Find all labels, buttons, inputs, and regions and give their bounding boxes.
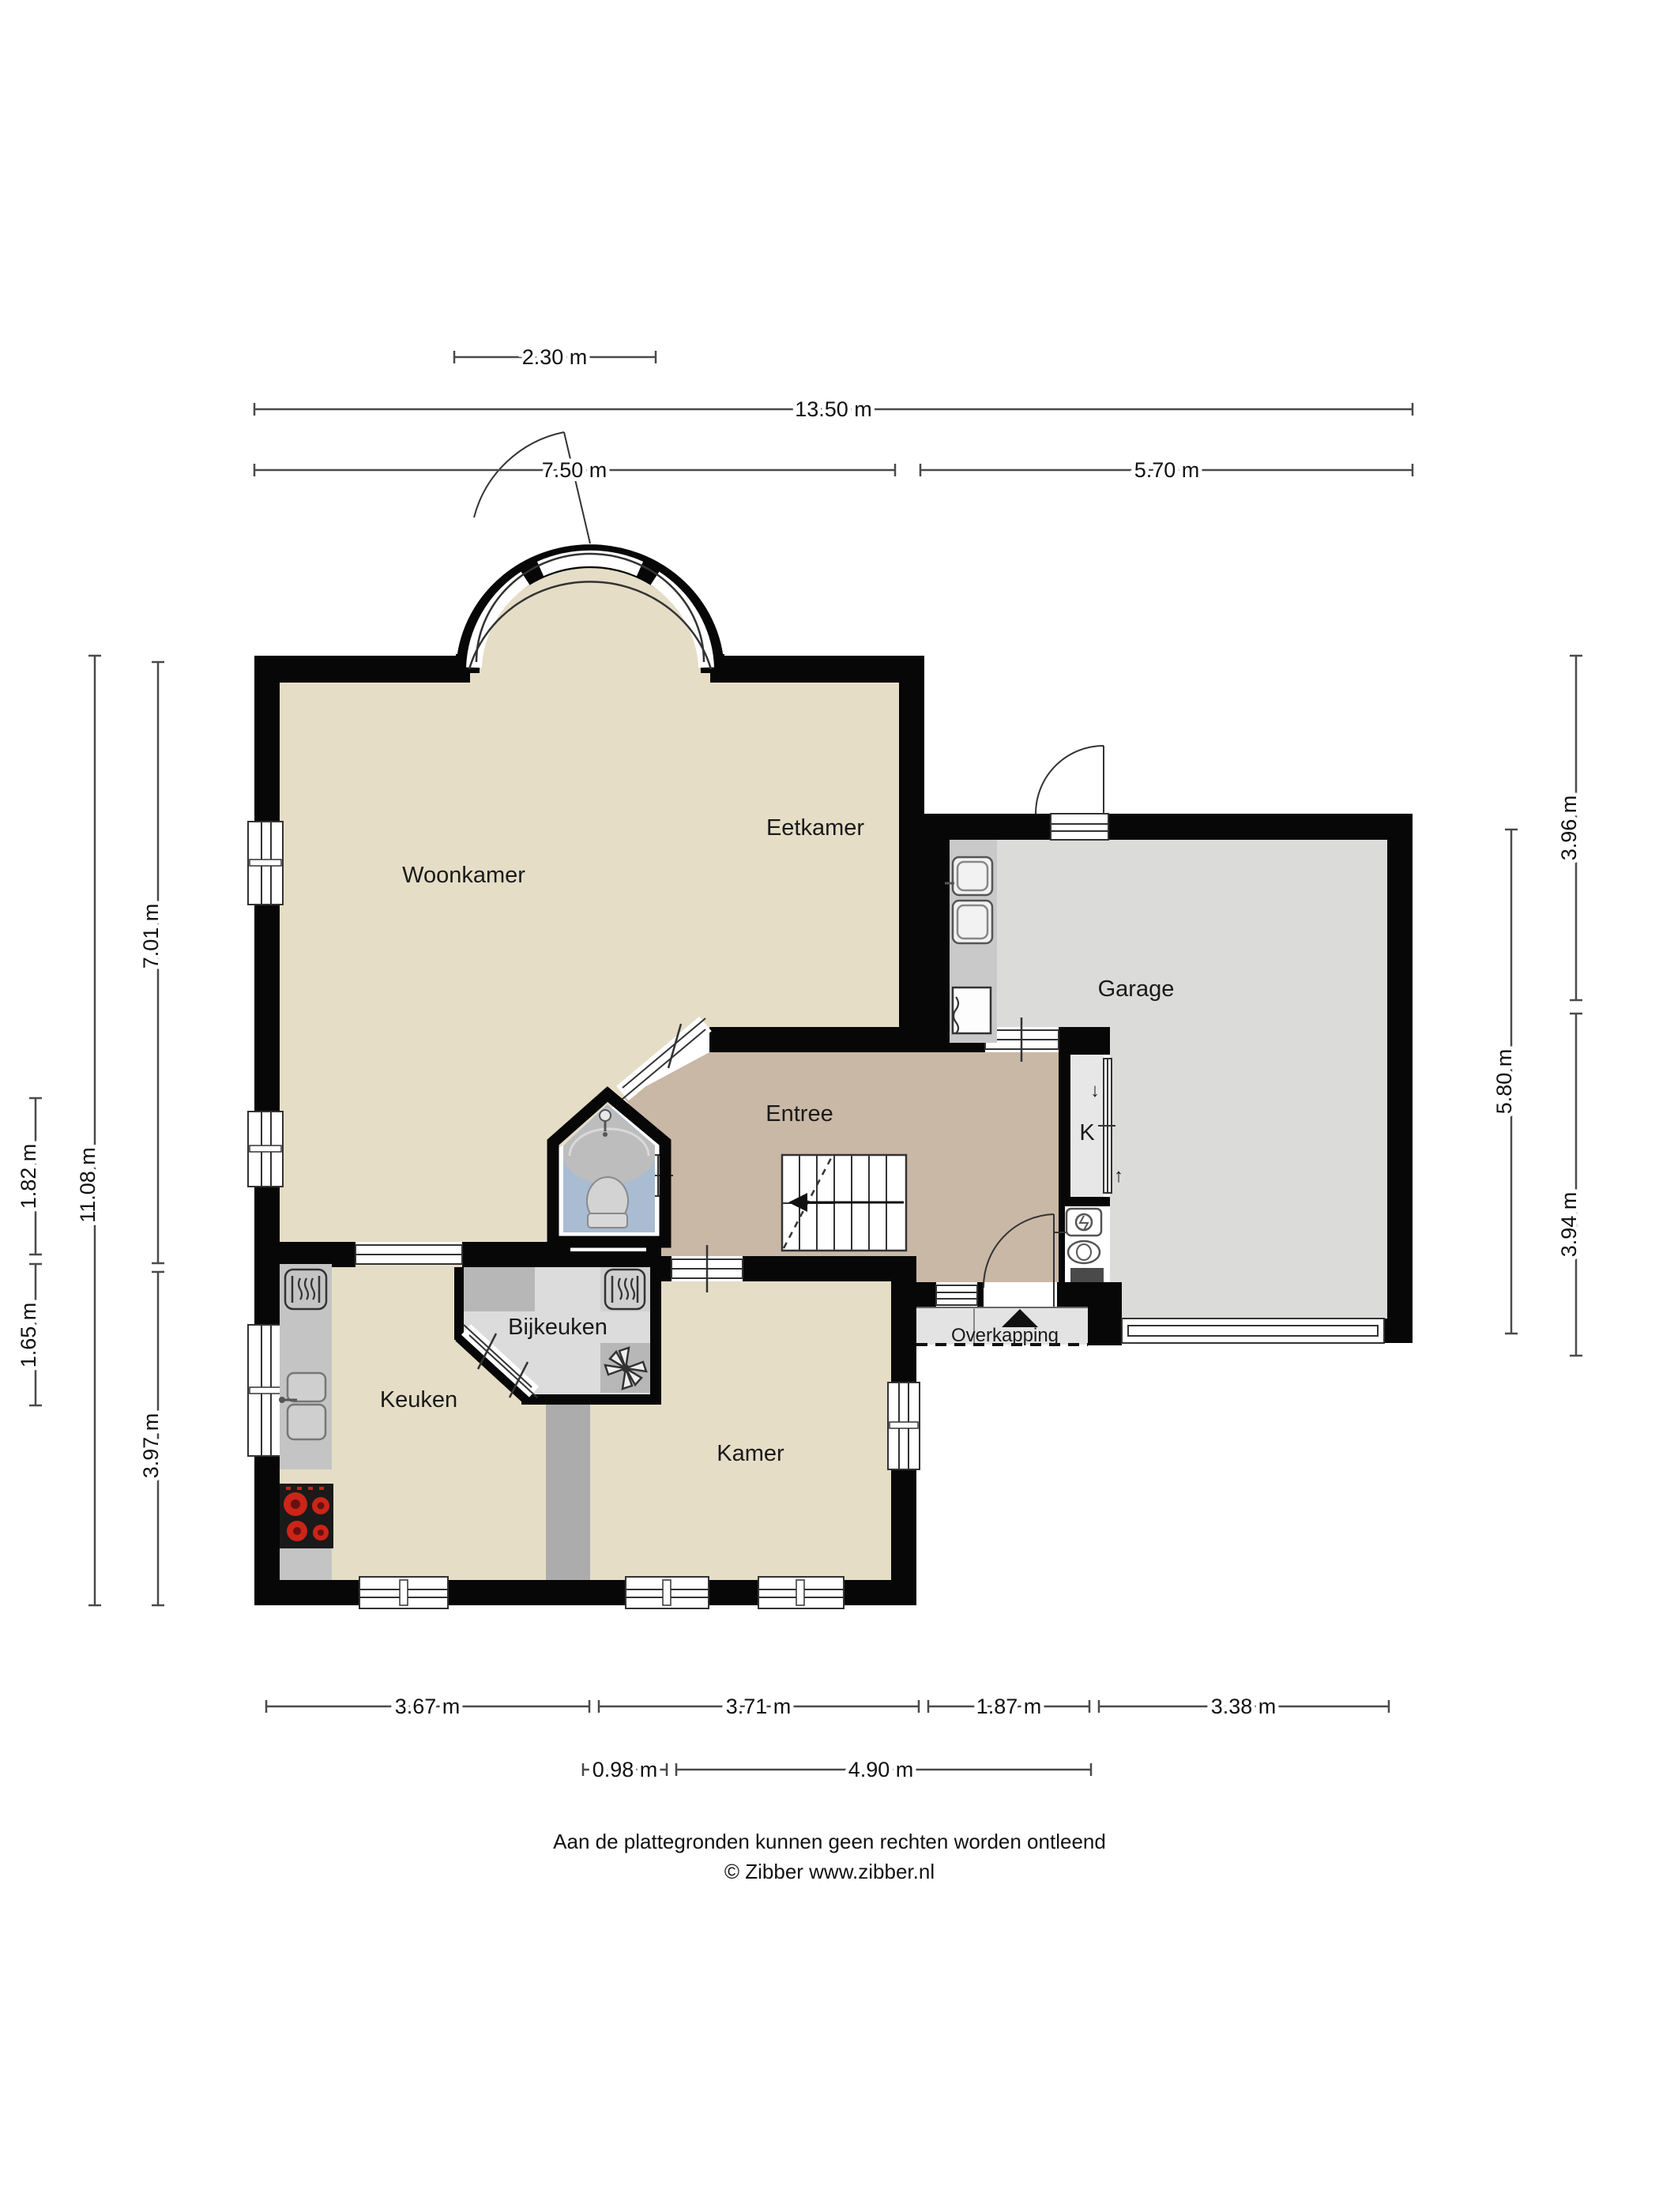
dim-bottom-371: 3.71 m [599, 1695, 919, 1718]
floorplan-page: Woonkamer Eetkamer Entree Garage Keuken … [0, 0, 1659, 2212]
window-interior-keuken [355, 1245, 462, 1264]
window-kamer-right [888, 1382, 920, 1469]
wall-garage-right [1387, 814, 1413, 1343]
dim-bottom-367: 3.67 m [266, 1695, 589, 1718]
dim-top-total: 13.50 m [254, 397, 1413, 421]
dim-bottom-490: 4.90 m [676, 1758, 1091, 1781]
wall-right-lower-1 [891, 1281, 916, 1382]
k-arrow-up: ↑ [1114, 1165, 1123, 1187]
dim-label-367: 3.67 m [395, 1695, 461, 1718]
label-bijkeuken: Bijkeuken [508, 1315, 608, 1340]
dim-label-570: 5.70 m [1134, 458, 1200, 482]
wall-bijkeuken-bottom [521, 1394, 661, 1405]
dim-label-490: 4.90 m [848, 1758, 914, 1781]
dim-label-394: 3.94 m [1557, 1192, 1581, 1258]
floors [280, 566, 1387, 1580]
wall-left-2 [254, 905, 280, 1112]
garage-overhead-door [1122, 1319, 1384, 1343]
stairs [782, 1155, 906, 1251]
wall-left-1 [254, 656, 280, 822]
label-woonkamer: Woonkamer [402, 863, 525, 888]
wall-bijkeuken-right [650, 1267, 661, 1405]
bay-door-leaf [564, 432, 590, 544]
wall-top-right [724, 656, 924, 683]
wall-right-upper [899, 656, 924, 1027]
wall-mid-a1 [254, 1242, 355, 1267]
label-kamer: Kamer [717, 1441, 784, 1466]
dim-top-bay: 2.30 m [454, 345, 656, 369]
footer: Aan de plattegronden kunnen geen rechten… [553, 1830, 1106, 1883]
shaft-fixtures [1066, 1209, 1101, 1263]
label-entree: Entree [766, 1101, 833, 1127]
dim-label-1108: 11.08 m [76, 1147, 100, 1223]
bijkeuken-counter-1 [464, 1267, 535, 1311]
window-woonkamer-left-2 [248, 1112, 283, 1187]
wall-garage-br-corner [1384, 1319, 1413, 1343]
wall-k-bottom [1059, 1197, 1110, 1206]
wall-entree-front-3 [1057, 1282, 1088, 1307]
wall-k-top [1059, 1027, 1110, 1055]
wall-entree-top [709, 1027, 985, 1052]
label-keuken: Keuken [380, 1387, 457, 1413]
label-overkapping: Overkapping [951, 1325, 1059, 1346]
footer-copyright: © Zibber www.zibber.nl [724, 1860, 935, 1883]
toilet-icon [587, 1177, 628, 1228]
dim-label-187: 1.87 m [976, 1695, 1042, 1718]
label-garage: Garage [1098, 976, 1175, 1002]
wall-right-lower-2 [891, 1469, 916, 1605]
dim-bottom-187: 1.87 m [928, 1695, 1089, 1718]
window-keuken-left [248, 1325, 283, 1456]
dim-top-garage: 5.70 m [920, 458, 1413, 482]
wall-keuken-kamer [546, 1405, 590, 1580]
dim-right-580: 5.80 m [1492, 829, 1518, 1334]
dim-label-750: 7.50 m [542, 458, 608, 482]
wall-garage-top-2 [1108, 814, 1413, 840]
dim-label-230: 2.30 m [522, 345, 588, 369]
window-entree-sidelight [936, 1285, 977, 1305]
wall-garage-left [924, 840, 950, 1027]
wall-top-left [254, 656, 456, 683]
wall-mid-b1 [661, 1256, 671, 1281]
label-eetkamer: Eetkamer [766, 815, 864, 841]
dim-label-396: 3.96 m [1557, 796, 1581, 861]
wall-bottom-3 [709, 1580, 758, 1605]
wall-mid-b2 [743, 1256, 916, 1281]
wall-entree-front-1 [916, 1282, 936, 1307]
footer-disclaimer: Aan de plattegronden kunnen geen rechten… [553, 1830, 1106, 1853]
dim-right-396: 3.96 m [1557, 656, 1582, 1000]
window-kamer-bottom-2 [758, 1577, 844, 1608]
dim-bottom-098: 0.98 m [583, 1758, 667, 1781]
wall-k-left [1059, 1055, 1070, 1206]
wall-garage-bl-corner [1088, 1282, 1122, 1345]
dim-right-394: 3.94 m [1557, 1014, 1582, 1356]
dim-left-165: 1.65 m [17, 1264, 42, 1405]
dim-label-165: 1.65 m [17, 1303, 40, 1368]
wall-entree-front-2 [977, 1282, 984, 1307]
window-kamer-bottom-1 [626, 1577, 709, 1608]
dim-label-182: 1.82 m [17, 1144, 40, 1209]
wall-garage-top-1 [924, 814, 1051, 840]
dim-left-182: 1.82 m [17, 1098, 42, 1255]
dim-label-397: 3.97 m [139, 1413, 163, 1479]
wall-bottom-1 [254, 1580, 359, 1605]
wall-bijkeuken-left [454, 1267, 464, 1340]
dim-label-701: 7.01 m [139, 904, 163, 969]
dim-bottom-338: 3.38 m [1099, 1695, 1389, 1718]
oven-icon [285, 1270, 326, 1309]
dim-left-397: 3.97 m [139, 1272, 164, 1605]
laundry-basket-icon [953, 987, 991, 1033]
dim-left-1108: 11.08 m [76, 656, 101, 1605]
label-kast: K [1079, 1120, 1095, 1145]
floorplan-canvas: Woonkamer Eetkamer Entree Garage Keuken … [0, 0, 1659, 2212]
wall-bottom-2 [448, 1580, 626, 1605]
dim-top-house: 7.50 m [254, 458, 895, 482]
window-keuken-bottom [359, 1577, 448, 1608]
boiler-icon [605, 1270, 645, 1309]
meter-block [1070, 1268, 1104, 1282]
window-woonkamer-left-1 [248, 822, 283, 905]
k-arrow-down: ↓ [1090, 1080, 1100, 1101]
stove-icon [280, 1484, 333, 1580]
dim-left-701: 7.01 m [139, 662, 164, 1263]
dim-label-371: 3.71 m [726, 1695, 792, 1718]
wall-shaft-left [1059, 1206, 1065, 1282]
dim-label-098: 0.98 m [592, 1758, 658, 1781]
dim-label-580: 5.80 m [1492, 1049, 1516, 1115]
dim-label-338: 3.38 m [1211, 1695, 1277, 1718]
dim-label-1350: 13.50 m [795, 397, 872, 421]
